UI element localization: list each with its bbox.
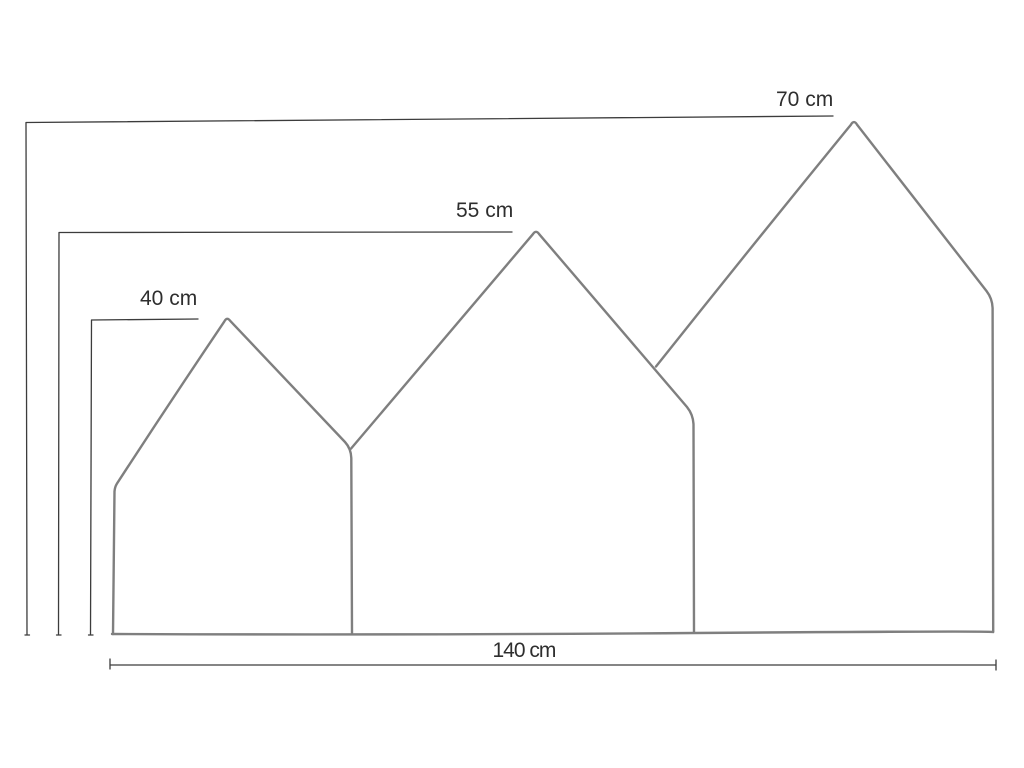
svg-text:40 cm: 40 cm: [140, 287, 197, 310]
svg-text:55 cm: 55 cm: [456, 199, 513, 222]
svg-text:140 cm: 140 cm: [493, 639, 556, 662]
svg-text:70 cm: 70 cm: [776, 88, 833, 111]
